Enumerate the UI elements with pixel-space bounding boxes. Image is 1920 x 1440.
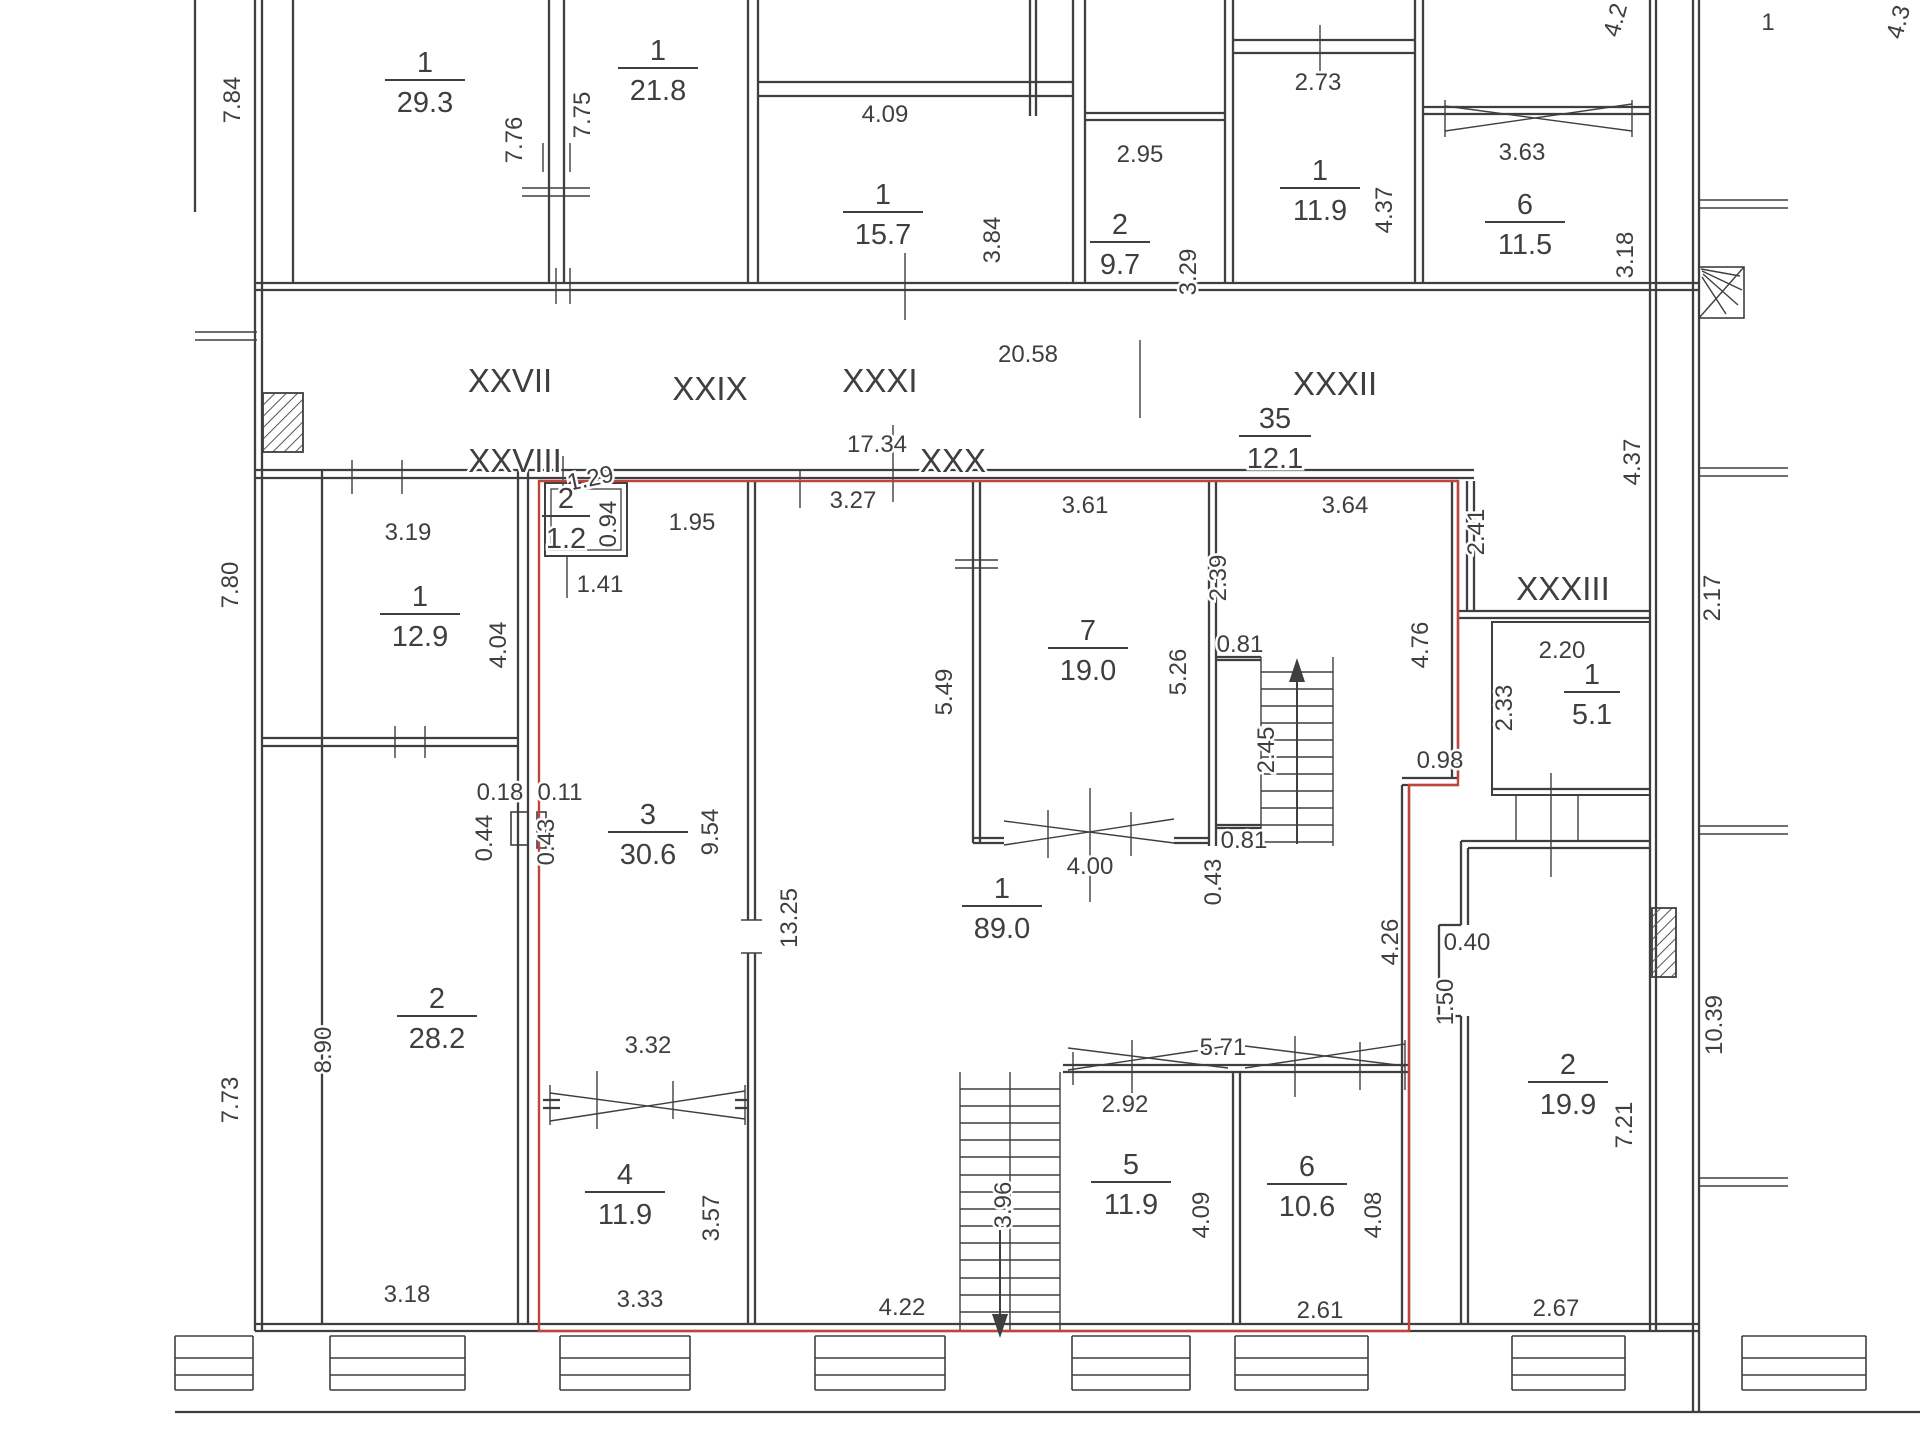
dimension-label: 0.11 (538, 779, 583, 806)
dimension-label: 4.04 (485, 622, 512, 669)
dimension-label: 1.41 (577, 571, 624, 598)
dimension-label: XXX (920, 442, 986, 479)
dimension-label: XXXI (842, 362, 917, 399)
dimension-label: 2.39 (1205, 555, 1232, 602)
room-label: 411.9 (585, 1159, 665, 1231)
dimension-label: 4.37 (1371, 187, 1398, 234)
room-label: 129.3 (385, 47, 465, 119)
dimension-label: 0.98 (1417, 747, 1464, 774)
room-number: 2 (1112, 209, 1128, 241)
room-area: 11.9 (598, 1199, 652, 1231)
dimension-label: 2.95 (1117, 141, 1164, 168)
room-area: 29.3 (397, 87, 453, 119)
dimension-label: 7.75 (569, 92, 596, 139)
dimension-label: 3.96 (990, 1182, 1017, 1229)
dimension-label: 3.19 (385, 519, 432, 546)
room-number: 1 (994, 873, 1010, 905)
detail-line (1702, 277, 1726, 314)
room-area: 28.2 (409, 1023, 465, 1055)
room-number: 3 (640, 799, 656, 831)
room-number: 2 (1560, 1049, 1576, 1081)
dimension-label: 3.18 (384, 1281, 431, 1308)
dimension-label: 2.17 (1699, 575, 1726, 622)
dimension-label: 3.18 (1612, 232, 1639, 279)
room-label: 219.9 (1528, 1049, 1608, 1121)
dimension-label: 3.57 (698, 1195, 725, 1242)
dimension-label: 4.37 (1619, 439, 1646, 486)
room-number: 6 (1517, 189, 1533, 221)
room-label: 112.9 (380, 581, 460, 653)
room-number: 2 (558, 483, 574, 515)
stair-arrow-head (1289, 658, 1305, 682)
dimension-label: 3.33 (617, 1286, 664, 1313)
detail-line (550, 1093, 745, 1119)
room-area: 21.8 (630, 75, 686, 107)
dimension-label: XXXIII (1516, 570, 1610, 607)
detail-line (1699, 267, 1744, 318)
dimension-label: 4.3 (1881, 2, 1916, 41)
dimension-label: 2.92 (1102, 1091, 1149, 1118)
room-label: 719.0 (1048, 615, 1128, 687)
dimension-label: 1.95 (669, 509, 716, 536)
dimension-label: 3.27 (830, 487, 877, 514)
dimension-label: 4.09 (862, 101, 909, 128)
detail-line (1245, 1046, 1405, 1066)
room-label: 121.8 (618, 35, 698, 107)
stair-arrow-head (992, 1314, 1008, 1338)
room-number: 5 (1123, 1149, 1139, 1181)
dimension-label: 0.44 (471, 815, 498, 862)
dimension-label: 0.81 (1221, 827, 1268, 854)
dimension-label: 9.54 (697, 809, 724, 856)
room-number: 1 (1312, 155, 1328, 187)
dimension-label: 2.41 (1463, 509, 1490, 556)
room-area: 10.6 (1279, 1191, 1335, 1223)
dimension-label: 8.90 (310, 1027, 337, 1074)
room-area: 12.1 (1247, 443, 1303, 475)
fixture-rect (511, 812, 528, 845)
floor-plan-page: 7.847.767.754.093.842.953.292.734.373.63… (0, 0, 1920, 1440)
room-area: 15.7 (855, 219, 911, 251)
room-label: 189.0 (962, 873, 1042, 945)
room-number: 1 (875, 179, 891, 211)
dimension-label: 1.50 (1432, 979, 1459, 1026)
room-area: 30.6 (620, 839, 676, 871)
room-number: 1 (412, 581, 428, 613)
dimension-label: 2.33 (1491, 685, 1518, 732)
room-number: 2 (429, 983, 445, 1015)
dimension-label: 3.63 (1499, 139, 1546, 166)
dimension-label: 5.26 (1165, 649, 1192, 696)
dimension-label: 10.39 (1701, 995, 1728, 1055)
dimension-label: 0.94 (595, 501, 622, 548)
room-label: 15.1 (1564, 659, 1620, 731)
dimension-label: 7.73 (217, 1077, 244, 1124)
room-label: 111.9 (1280, 155, 1360, 227)
dimension-label: 4.22 (879, 1294, 926, 1321)
room-label: 29.7 (1090, 209, 1150, 281)
dimension-label: 0.43 (533, 819, 560, 866)
room-number: 1 (1584, 659, 1600, 691)
room-area: 1.2 (546, 523, 586, 555)
room-number: 1 (650, 35, 666, 67)
detail-line (1004, 821, 1174, 843)
dimension-label: 2.73 (1295, 69, 1342, 96)
dimension-label: 0.18 (477, 779, 524, 806)
dimension-label: 3.32 (625, 1032, 672, 1059)
hatch-block (263, 393, 303, 452)
room-area: 11.9 (1293, 195, 1347, 227)
dimension-label: 20.58 (998, 341, 1058, 368)
hatch-block (1652, 908, 1676, 977)
dimension-label: XXIX (672, 370, 747, 407)
dimension-label: 7.84 (219, 77, 246, 124)
room-area: 11.9 (1104, 1189, 1158, 1221)
dimension-label: 4.08 (1360, 1192, 1387, 1239)
dimension-label: 0.43 (1200, 859, 1227, 906)
room-label: 611.5 (1485, 189, 1565, 261)
dimension-label: 5.49 (931, 669, 958, 716)
room-area: 89.0 (974, 913, 1030, 945)
room-label: 610.6 (1267, 1151, 1347, 1223)
dimension-label: 2.45 (1253, 727, 1280, 774)
room-area: 11.5 (1498, 229, 1552, 261)
room-labels: 129.3121.8115.729.7111.9611.53512.121.21… (380, 35, 1620, 1231)
detail-line (1703, 274, 1738, 305)
room-label: 115.7 (843, 179, 923, 251)
dimension-label: 0.40 (1444, 929, 1491, 956)
dimension-label: XXVII (468, 362, 552, 399)
dimension-label: 7.80 (217, 562, 244, 609)
room-area: 19.0 (1060, 655, 1116, 687)
detail-line (1701, 269, 1740, 276)
dimension-label: 4.00 (1067, 853, 1114, 880)
dimension-label: 1 (1761, 9, 1774, 36)
room-number: 6 (1299, 1151, 1315, 1183)
dimension-label: 17.34 (847, 431, 907, 458)
window-sills (175, 1336, 1866, 1390)
dimension-label: 5.71 (1200, 1034, 1247, 1061)
dimension-label: 4.76 (1407, 622, 1434, 669)
dimension-label: 4.26 (1377, 919, 1404, 966)
dimension-label: 3.61 (1062, 492, 1109, 519)
dimension-label: 2.61 (1297, 1297, 1344, 1324)
walls (175, 0, 1920, 1412)
dimension-label: 4.2 (1598, 0, 1633, 39)
room-label: 330.6 (608, 799, 688, 871)
room-number: 7 (1080, 615, 1096, 647)
room-area: 5.1 (1572, 699, 1612, 731)
room-number: 1 (417, 47, 433, 79)
dimension-label: 2.67 (1533, 1295, 1580, 1322)
room-label: 228.2 (397, 983, 477, 1055)
dimension-label: 7.76 (501, 117, 528, 164)
dimension-label: 4.09 (1188, 1192, 1215, 1239)
dimension-label: 2.20 (1539, 637, 1586, 664)
dimension-label: 3.29 (1175, 249, 1202, 296)
dimension-label: 3.84 (979, 217, 1006, 264)
dimension-label: XXVIII (468, 442, 562, 479)
room-area: 12.9 (392, 621, 448, 653)
room-label: 511.9 (1091, 1149, 1171, 1221)
fixtures (511, 267, 1744, 848)
dimension-label: 13.25 (776, 888, 803, 948)
room-area: 9.7 (1100, 249, 1140, 281)
room-area: 19.9 (1540, 1089, 1596, 1121)
dimension-label: 3.64 (1322, 492, 1369, 519)
dimension-label: 0.81 (1217, 631, 1264, 658)
room-number: 4 (617, 1159, 633, 1191)
room-number: 35 (1259, 403, 1291, 435)
floor-plan-canvas: 7.847.767.754.093.842.953.292.734.373.63… (0, 0, 1920, 1440)
dimension-label: XXXII (1293, 365, 1377, 402)
room-label: 3512.1 (1239, 403, 1311, 475)
dimension-label: 7.21 (1611, 1102, 1638, 1149)
